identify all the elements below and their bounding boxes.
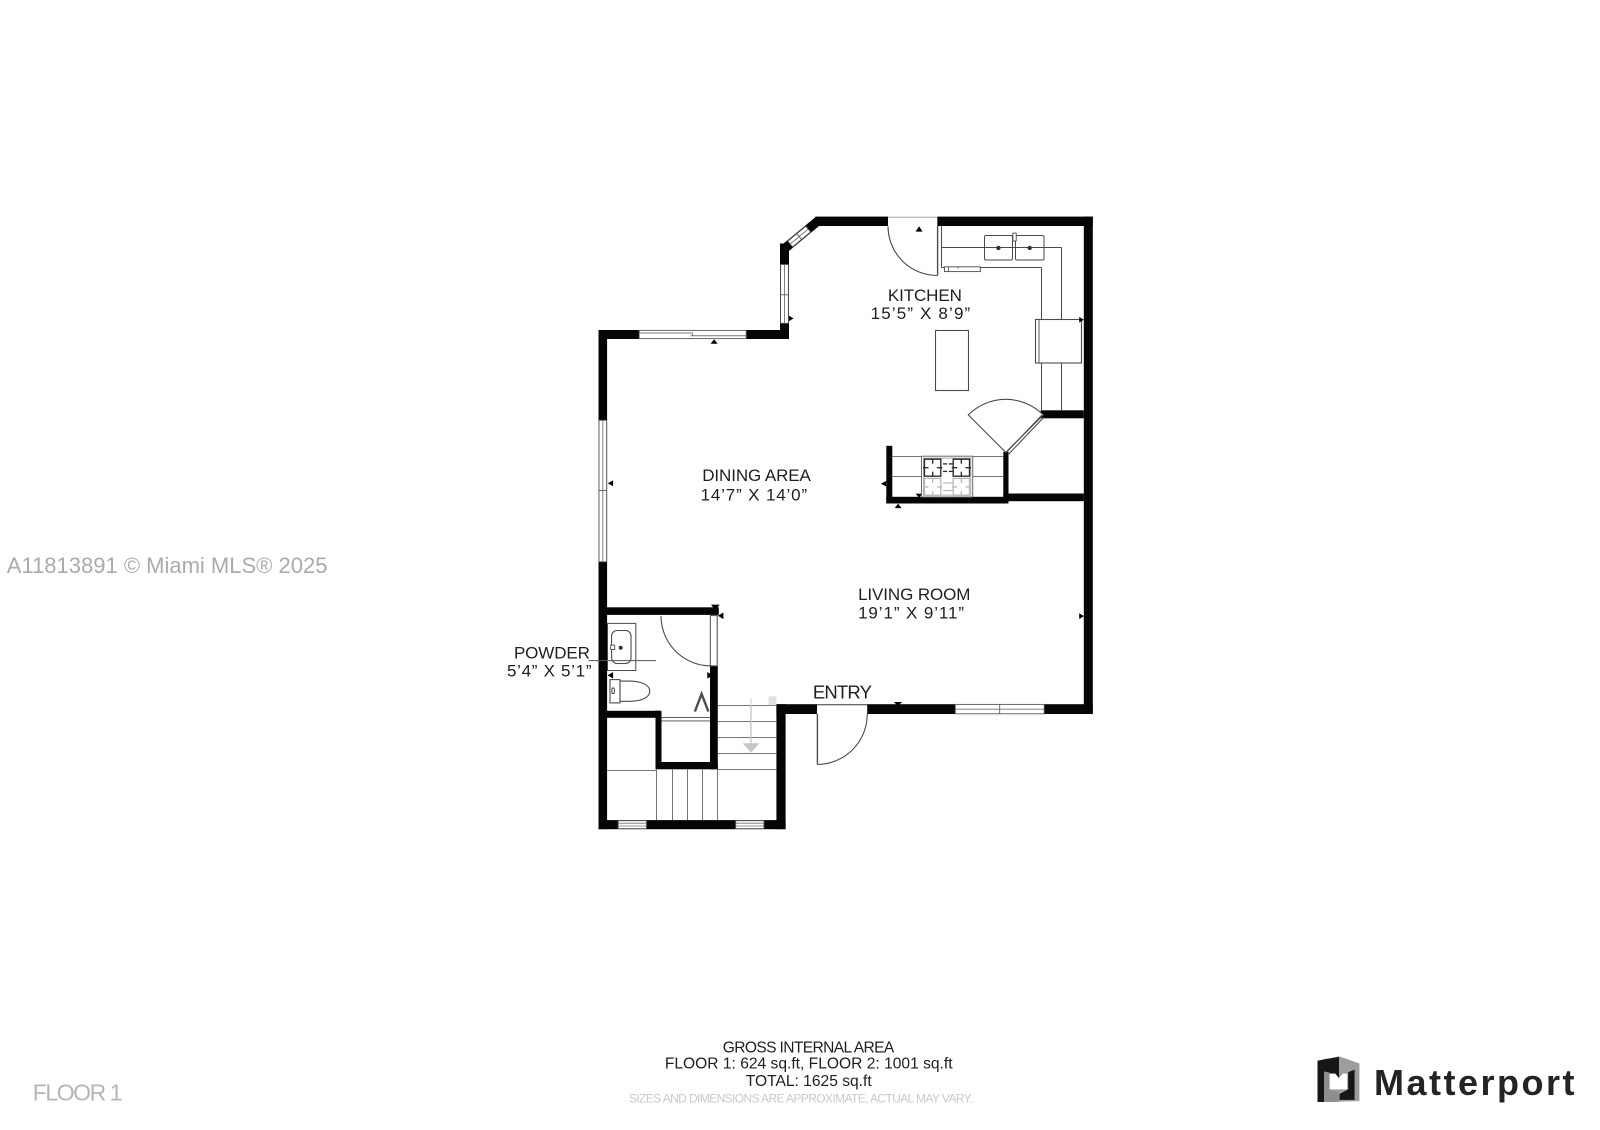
svg-text:SIZES AND DIMENSIONS ARE APPRO: SIZES AND DIMENSIONS ARE APPROXIMATE, AC… xyxy=(629,1091,973,1105)
svg-text:LIVING ROOM: LIVING ROOM xyxy=(858,585,970,604)
svg-text:15’5” X 8’9”: 15’5” X 8’9” xyxy=(871,304,972,323)
svg-text:FLOOR 1: 624 sq.ft, FLOOR 2: 1: FLOOR 1: 624 sq.ft, FLOOR 2: 1001 sq.ft xyxy=(665,1056,953,1073)
svg-text:DINING AREA: DINING AREA xyxy=(702,466,811,485)
svg-text:14’7” X 14’0”: 14’7” X 14’0” xyxy=(701,485,808,504)
svg-text:KITCHEN: KITCHEN xyxy=(888,286,962,305)
svg-text:5’4” X 5’1”: 5’4” X 5’1” xyxy=(507,662,592,681)
svg-text:POWDER: POWDER xyxy=(514,644,590,663)
svg-text:GROSS INTERNAL AREA: GROSS INTERNAL AREA xyxy=(723,1040,895,1057)
svg-text:A11813891 © Miami MLS® 2025: A11813891 © Miami MLS® 2025 xyxy=(7,553,328,578)
svg-text:19’1” X 9’11”: 19’1” X 9’11” xyxy=(858,604,965,623)
svg-text:Matterport: Matterport xyxy=(1374,1062,1577,1103)
svg-text:TOTAL: 1625 sq.ft: TOTAL: 1625 sq.ft xyxy=(746,1073,873,1090)
svg-text:FLOOR 1: FLOOR 1 xyxy=(33,1079,122,1105)
svg-text:ENTRY: ENTRY xyxy=(813,682,872,703)
